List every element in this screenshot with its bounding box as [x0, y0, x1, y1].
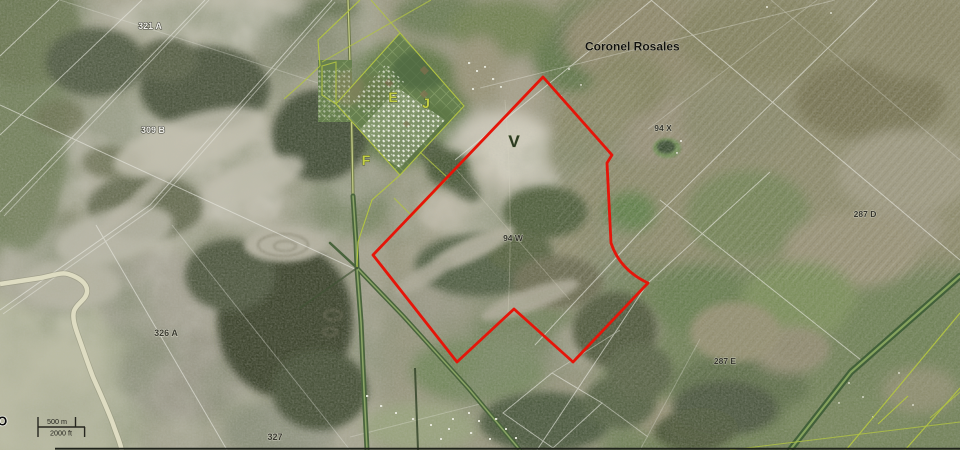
svg-text:327: 327: [267, 432, 282, 442]
svg-text:287 D: 287 D: [854, 209, 877, 219]
svg-text:E: E: [388, 89, 397, 105]
svg-text:2000 ft: 2000 ft: [50, 429, 72, 438]
svg-text:Coronel Rosales: Coronel Rosales: [585, 40, 680, 54]
svg-text:94 W: 94 W: [503, 233, 524, 243]
svg-text:94 X: 94 X: [654, 123, 672, 133]
svg-text:O: O: [0, 415, 8, 429]
svg-text:321 A: 321 A: [138, 21, 162, 31]
svg-text:309 B: 309 B: [141, 125, 166, 135]
svg-text:287 E: 287 E: [714, 356, 737, 366]
svg-text:V: V: [508, 132, 520, 151]
svg-text:500 m: 500 m: [47, 417, 67, 426]
svg-text:F: F: [362, 152, 371, 168]
svg-text:J: J: [422, 95, 430, 111]
svg-text:326 A: 326 A: [154, 328, 178, 338]
